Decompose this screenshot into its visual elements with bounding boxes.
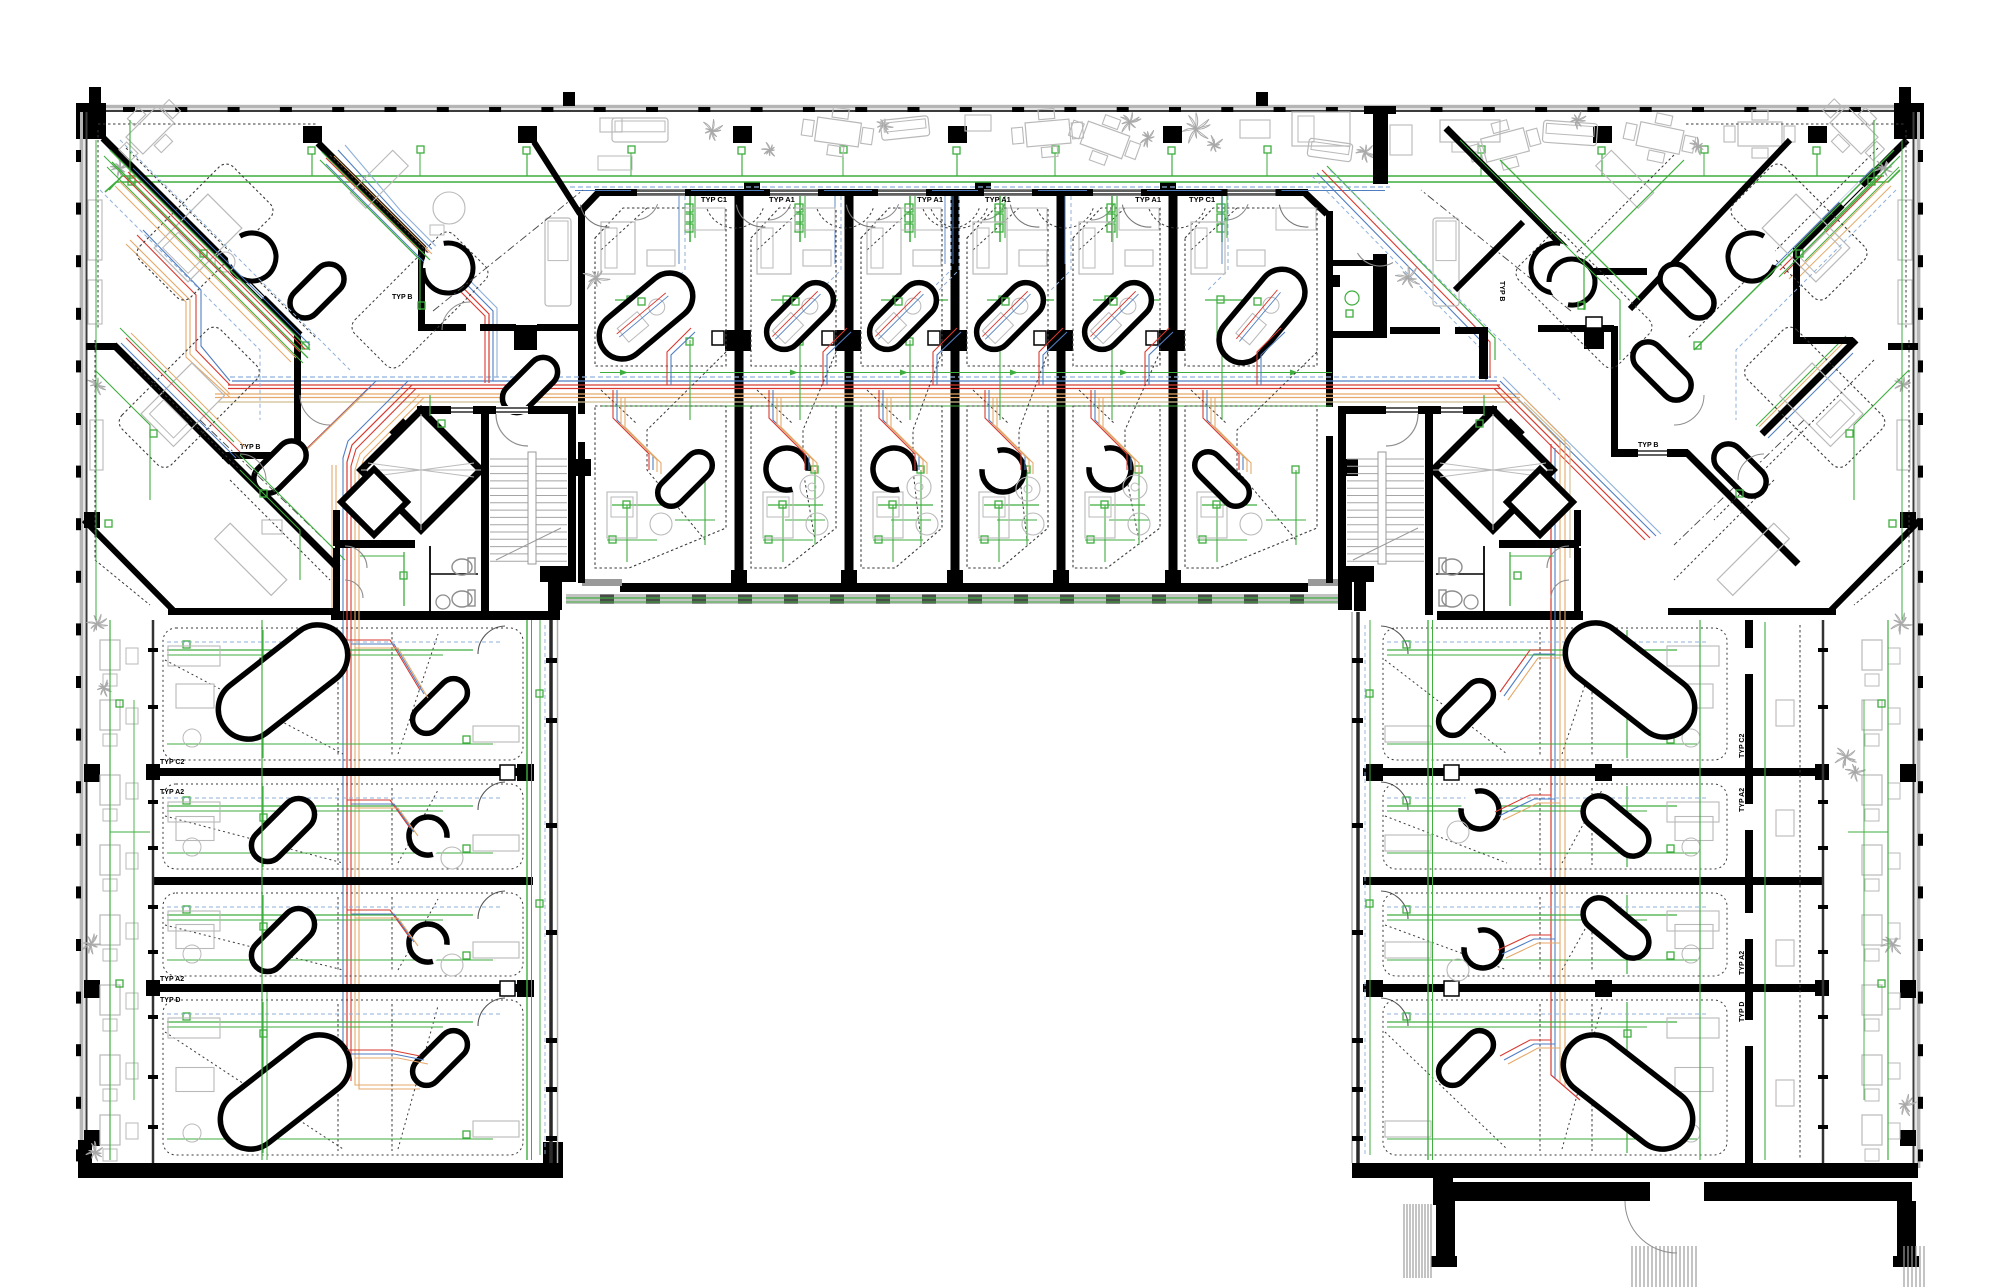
- svg-text:TYP A2: TYP A2: [160, 976, 184, 983]
- svg-text:TYP D: TYP D: [160, 997, 181, 1004]
- svg-text:TYP C1: TYP C1: [1189, 195, 1215, 204]
- svg-text:TYP C2: TYP C2: [1739, 734, 1746, 758]
- svg-text:TYP A2: TYP A2: [160, 789, 184, 796]
- svg-text:TYP A1: TYP A1: [917, 195, 943, 204]
- svg-text:TYP D: TYP D: [1739, 1002, 1746, 1023]
- svg-text:TYP B: TYP B: [1638, 442, 1659, 449]
- svg-text:TYP A1: TYP A1: [1135, 195, 1161, 204]
- svg-text:TYP A2: TYP A2: [1739, 788, 1746, 812]
- svg-text:TYP C1: TYP C1: [701, 195, 727, 204]
- svg-text:TYP A2: TYP A2: [1739, 951, 1746, 975]
- svg-text:TYP A1: TYP A1: [769, 195, 795, 204]
- svg-text:TYP C2: TYP C2: [160, 759, 184, 766]
- svg-text:TYP B: TYP B: [392, 294, 413, 301]
- svg-text:TYP B: TYP B: [1498, 281, 1505, 302]
- svg-text:TYP A1: TYP A1: [985, 195, 1011, 204]
